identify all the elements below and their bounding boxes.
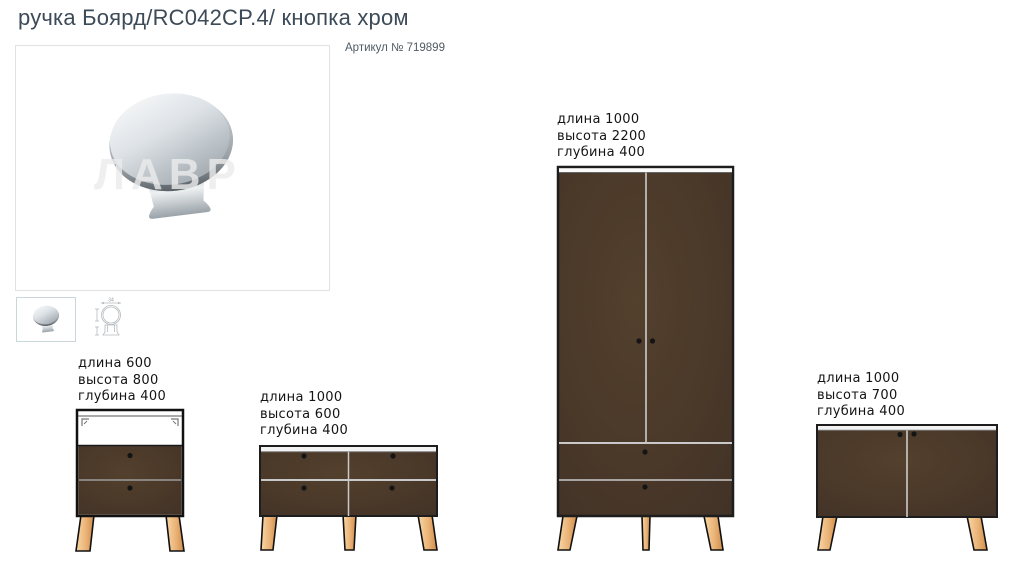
knob-dot <box>301 485 306 490</box>
leg <box>343 515 356 550</box>
top-strip <box>818 426 996 430</box>
leg <box>818 516 837 550</box>
spec-length: длина 1000 <box>817 371 905 388</box>
knob-dot <box>301 453 306 458</box>
spec-length: длина 600 <box>78 356 166 373</box>
top-strip <box>559 168 732 172</box>
drawing-nightstand <box>63 408 193 558</box>
drawing-wardrobe <box>548 160 748 555</box>
leg <box>261 515 277 550</box>
spec-depth: глубина 400 <box>78 389 166 406</box>
spec-height: высота 2200 <box>557 129 646 146</box>
knob-dot <box>636 338 641 343</box>
thumbnail-photo[interactable] <box>16 297 76 342</box>
thumbnail-knob-icon <box>17 298 75 341</box>
knob-dot <box>911 431 916 436</box>
watermark-text: ЛАВР <box>94 150 242 199</box>
knob-dot <box>642 484 647 489</box>
leg <box>967 516 987 550</box>
page-title: ручка Боярд/RC042CP.4/ кнопка хром <box>18 5 409 31</box>
spec-height: высота 700 <box>817 388 905 405</box>
leg <box>76 515 94 551</box>
spec-depth: глубина 400 <box>260 423 348 440</box>
leg <box>704 516 723 550</box>
knob-dot <box>389 485 394 490</box>
spec-length: длина 1000 <box>260 390 348 407</box>
drawing-cabinet <box>807 420 1012 553</box>
sku-label: Артикул № 719899 <box>345 42 445 54</box>
knob-dot <box>127 453 132 458</box>
specs-nightstand: длина 600 высота 800 глубина 400 <box>78 356 166 406</box>
leg <box>418 515 437 550</box>
product-image: ЛАВР <box>15 45 330 291</box>
knob-dot <box>127 485 132 490</box>
specs-wardrobe: длина 1000 высота 2200 глубина 400 <box>557 112 646 162</box>
knob-dot <box>390 453 395 458</box>
thumbnail-dimension-drawing[interactable]: 34 <box>88 296 134 342</box>
chrome-knob-render: ЛАВР <box>16 46 329 289</box>
leg <box>642 516 650 550</box>
specs-dresser: длина 1000 высота 600 глубина 400 <box>260 390 348 440</box>
leg <box>166 515 184 551</box>
specs-cabinet: длина 1000 высота 700 глубина 400 <box>817 371 905 421</box>
knob-dot <box>642 449 647 454</box>
knob-dot <box>650 338 655 343</box>
drawing-dresser <box>250 443 450 555</box>
spec-height: высота 600 <box>260 407 348 424</box>
thumb-dim-label: 34 <box>108 298 114 304</box>
spec-height: высота 800 <box>78 373 166 390</box>
knob-dot <box>897 432 902 437</box>
dimension-drawing-icon: 34 <box>89 297 133 341</box>
leg <box>558 516 577 550</box>
spec-length: длина 1000 <box>557 112 646 129</box>
top-strip <box>261 447 436 452</box>
spec-depth: глубина 400 <box>817 404 905 421</box>
